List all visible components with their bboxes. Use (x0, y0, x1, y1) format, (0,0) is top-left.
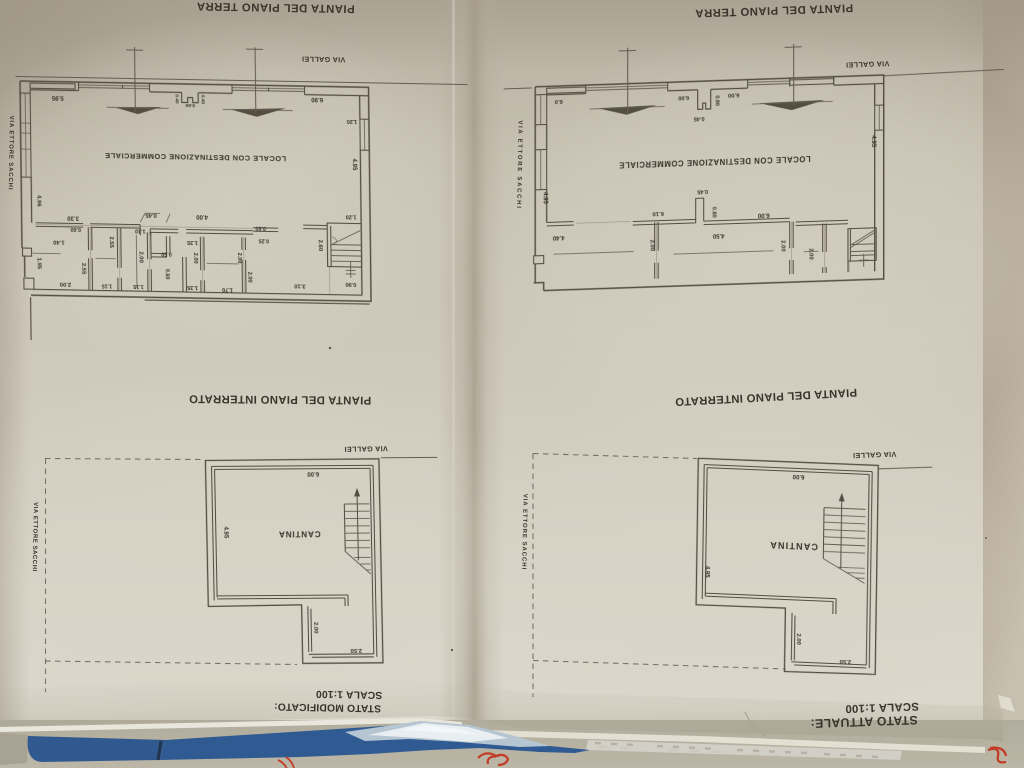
svg-text:4.95: 4.95 (351, 159, 358, 172)
svg-text:VIA ETTORE SACCHI: VIA ETTORE SACCHI (31, 502, 38, 572)
svg-text:1.70: 1.70 (222, 286, 233, 292)
svg-text:6.90: 6.90 (311, 96, 324, 103)
svg-text:2.00: 2.00 (59, 281, 71, 287)
svg-text:6.0: 6.0 (554, 98, 563, 104)
svg-text:2.00: 2.00 (649, 240, 655, 252)
svg-text:2.00: 2.00 (312, 622, 318, 634)
svg-text:1.15: 1.15 (102, 283, 113, 289)
svg-text:6.00: 6.00 (792, 473, 805, 481)
svg-text:1.15: 1.15 (133, 283, 144, 289)
svg-text:0.60: 0.60 (185, 102, 195, 108)
svg-text:2.00: 2.00 (780, 240, 786, 252)
svg-text:0.80: 0.80 (711, 207, 717, 218)
svg-text:0.90: 0.90 (345, 281, 356, 287)
svg-text:0.60: 0.60 (255, 225, 266, 231)
svg-text:4.95: 4.95 (870, 135, 877, 148)
svg-text:0.45: 0.45 (697, 188, 708, 194)
svg-text:4.00: 4.00 (196, 213, 209, 220)
svg-text:2.00: 2.00 (192, 253, 198, 264)
svg-text:SCALA 1:100: SCALA 1:100 (845, 700, 919, 715)
svg-text:SCALA 1:100: SCALA 1:100 (316, 688, 383, 700)
svg-text:0.40: 0.40 (199, 95, 205, 105)
svg-text:VIA GALLEI: VIA GALLEI (302, 55, 346, 65)
svg-text:4.96: 4.96 (35, 195, 41, 207)
svg-text:0.45: 0.45 (145, 212, 157, 218)
svg-text:0.45: 0.45 (694, 115, 705, 121)
svg-text:2.60: 2.60 (317, 240, 323, 252)
svg-text:0.40: 0.40 (173, 94, 179, 104)
svg-text:5.95: 5.95 (51, 94, 64, 101)
svg-text:2.50: 2.50 (350, 647, 362, 653)
svg-text:2.00: 2.00 (246, 272, 252, 283)
svg-text:CANTINA: CANTINA (278, 529, 321, 538)
svg-text:0.50: 0.50 (161, 251, 172, 257)
svg-text:3.10: 3.10 (293, 282, 305, 288)
svg-text:2.00: 2.00 (795, 633, 801, 645)
svg-text:4.50: 4.50 (712, 232, 724, 239)
svg-text:2.55: 2.55 (108, 236, 114, 248)
svg-text:1.40: 1.40 (52, 239, 64, 245)
svg-text:4.95: 4.95 (703, 566, 710, 579)
svg-text:VIA GALLEI: VIA GALLEI (853, 450, 897, 461)
svg-text:6.00: 6.00 (727, 91, 739, 97)
svg-text:0.60: 0.60 (70, 226, 81, 232)
svg-text:6.00: 6.00 (307, 470, 320, 477)
svg-text:1.10: 1.10 (135, 228, 146, 234)
svg-text:1.35: 1.35 (187, 284, 198, 290)
svg-text:0.90: 0.90 (714, 95, 720, 106)
svg-text:6.00: 6.00 (757, 211, 769, 218)
svg-text:4.40: 4.40 (552, 234, 564, 241)
svg-text:4.95: 4.95 (542, 192, 549, 205)
svg-text:STATO MODIFICATO:: STATO MODIFICATO: (274, 700, 381, 713)
svg-text:2.55: 2.55 (80, 263, 86, 275)
svg-text:CANTINA: CANTINA (769, 540, 818, 552)
svg-text:VIA GALLEI: VIA GALLEI (846, 59, 890, 70)
svg-text:1.20: 1.20 (346, 213, 357, 219)
svg-text:2.00: 2.00 (137, 251, 143, 263)
svg-text:4.95: 4.95 (222, 526, 229, 539)
svg-text:2.00: 2.00 (236, 252, 242, 263)
svg-text:2.00: 2.00 (808, 248, 814, 260)
svg-text:PIANTA DEL PIANO TERRA: PIANTA DEL PIANO TERRA (196, 0, 354, 14)
svg-text:1.95: 1.95 (36, 258, 42, 270)
svg-text:0.25: 0.25 (259, 237, 270, 243)
svg-text:2.50: 2.50 (839, 658, 851, 665)
svg-text:PIANTA DEL PIANO INTERRATO: PIANTA DEL PIANO INTERRATO (189, 392, 371, 406)
svg-text:6.00: 6.00 (678, 94, 689, 100)
svg-text:6.10: 6.10 (652, 210, 664, 216)
svg-text:0.60: 0.60 (164, 269, 170, 280)
svg-text:3.30: 3.30 (67, 214, 80, 221)
svg-text:1.35: 1.35 (187, 239, 198, 245)
svg-text:1.20: 1.20 (347, 118, 358, 124)
svg-text:VIA GALLEI: VIA GALLEI (344, 444, 388, 454)
